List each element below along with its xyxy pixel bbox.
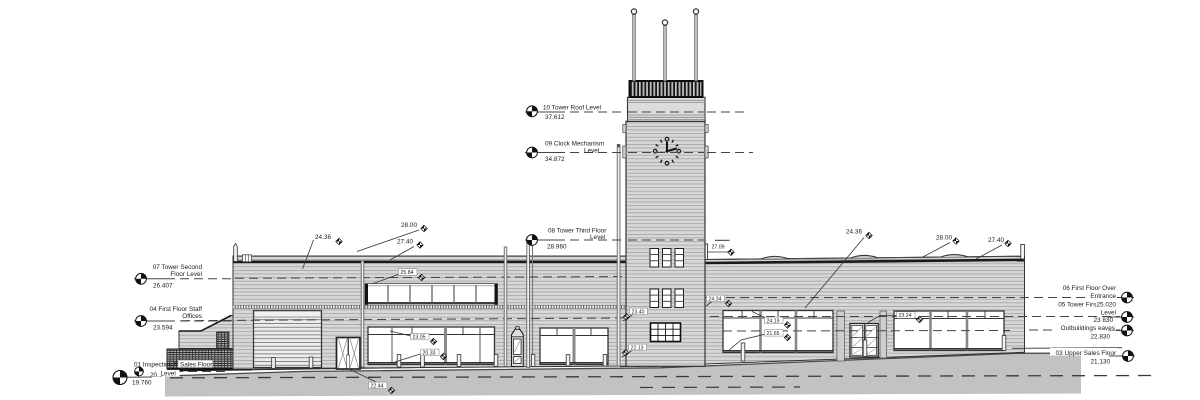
svg-text:26.407: 26.407: [153, 283, 173, 290]
svg-text:22.44: 22.44: [371, 383, 384, 389]
svg-text:Offices: Offices: [182, 313, 202, 320]
svg-text:19.760: 19.760: [132, 380, 152, 387]
svg-text:24.36: 24.36: [315, 234, 331, 241]
svg-text:27.40: 27.40: [397, 239, 413, 246]
svg-text:28.00: 28.00: [936, 235, 952, 242]
svg-text:23.40: 23.40: [632, 309, 645, 315]
svg-text:20.33: 20.33: [423, 350, 436, 356]
svg-text:Entrance: Entrance: [1090, 293, 1116, 300]
svg-text:Level: Level: [590, 234, 605, 241]
svg-text:24.34: 24.34: [709, 296, 722, 302]
svg-text:Level: Level: [161, 370, 176, 377]
svg-text:21.65: 21.65: [767, 331, 780, 337]
svg-text:27.40: 27.40: [988, 237, 1004, 244]
svg-text:27.09: 27.09: [712, 245, 725, 251]
svg-text:24.19: 24.19: [767, 318, 780, 324]
svg-text:Level: Level: [1101, 310, 1116, 317]
svg-text:05 Tower Firs25.020: 05 Tower Firs25.020: [1058, 302, 1116, 309]
svg-text:21.130: 21.130: [1090, 359, 1110, 366]
svg-text:23.594: 23.594: [153, 325, 173, 332]
svg-text:22.830: 22.830: [1090, 334, 1110, 341]
svg-text:22.13: 22.13: [631, 345, 644, 351]
svg-text:23.05: 23.05: [413, 335, 426, 341]
svg-text:37.612: 37.612: [545, 114, 565, 121]
svg-text:10 Tower Roof Level: 10 Tower Roof Level: [543, 105, 601, 112]
svg-text:Sales Floor: Sales Floor: [180, 361, 213, 368]
svg-text:25.84: 25.84: [401, 270, 414, 276]
svg-text:28.00: 28.00: [401, 222, 417, 229]
svg-text:28.960: 28.960: [547, 244, 567, 251]
svg-text:09 Clock Mechanism: 09 Clock Mechanism: [545, 141, 604, 148]
svg-text:23 830: 23 830: [1093, 317, 1113, 324]
svg-text:34.872: 34.872: [545, 156, 565, 163]
svg-text:23.24: 23.24: [899, 313, 912, 319]
svg-text:Floor Level: Floor Level: [170, 271, 202, 278]
svg-text:Level: Level: [584, 148, 599, 155]
svg-text:24.36: 24.36: [846, 229, 862, 236]
svg-text:Outbuildings eaves: Outbuildings eaves: [1061, 325, 1115, 332]
svg-text:03 Upper Sales Floor: 03 Upper Sales Floor: [1056, 350, 1117, 357]
svg-text:06 First Floor Over: 06 First Floor Over: [1063, 285, 1117, 292]
